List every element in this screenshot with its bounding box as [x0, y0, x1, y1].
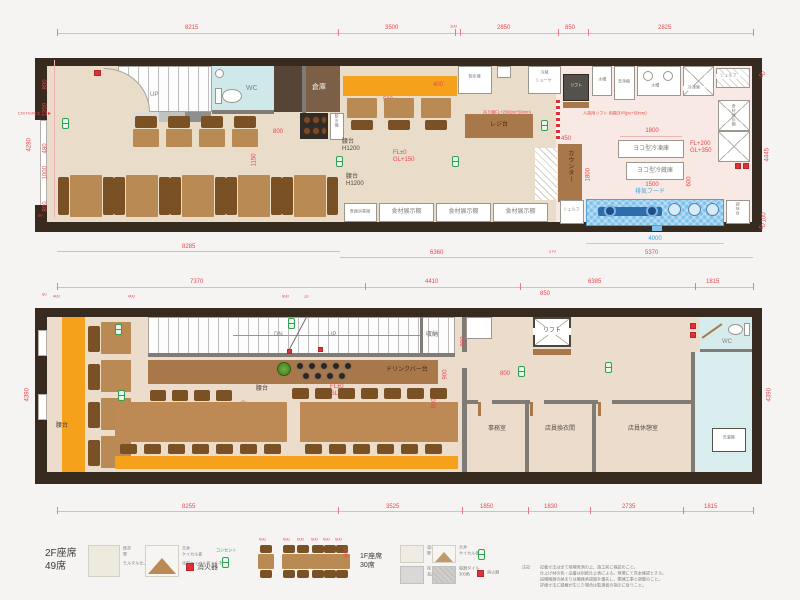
chair — [168, 444, 185, 454]
f1-food-shelf-label: 食材展示棚 — [379, 209, 434, 216]
table — [126, 175, 158, 217]
f1-wc-wall — [212, 110, 274, 114]
chair — [312, 570, 324, 578]
outlet-icon — [452, 156, 459, 167]
chair — [324, 545, 336, 553]
chair — [58, 177, 69, 215]
f1-wall-right — [752, 58, 762, 232]
burner — [668, 203, 681, 216]
chair — [170, 177, 181, 215]
f1-dim-850: 850 — [565, 25, 575, 32]
table — [70, 175, 102, 217]
pot — [308, 362, 316, 370]
f2-dim-1815: 1815 — [706, 279, 719, 286]
f1-dim-1800v: 1800 — [586, 155, 593, 181]
outlet-icon — [478, 549, 485, 560]
fire-extinguisher-icon — [287, 349, 292, 354]
f1-fl-plus: FL+200 — [690, 141, 711, 148]
legend-sw1-label2: 壁 — [123, 553, 127, 558]
bottle — [312, 116, 320, 124]
f1-toilet-tank — [215, 88, 222, 104]
f1-sink2 — [637, 66, 681, 96]
f2-partition — [467, 400, 478, 404]
dim-tick — [455, 29, 456, 36]
f2-dim-800b: 800 — [432, 382, 439, 408]
f1-freezer-label: 冷凍庫 — [683, 86, 705, 91]
dim-tick — [753, 29, 754, 36]
outlet-icon — [288, 318, 295, 329]
legend-swatch-wall — [88, 545, 120, 577]
f1-sink1-label: 水槽 — [594, 78, 610, 83]
floor-plan-sheet: 8215 3500 100 2850 850 2825 UP WC 倉庫 飲水機… — [0, 0, 800, 600]
f1-dim-1800h: 1800 — [632, 128, 672, 135]
f2-room-wall-v — [691, 352, 695, 472]
f1-dim-270: 270 — [549, 250, 556, 255]
f1-dim-400: 400 — [433, 82, 443, 89]
door-leaf — [478, 402, 481, 416]
f1-dim-1150: 1150 — [252, 140, 259, 166]
f2-partition — [612, 400, 693, 404]
f1-dim-4000: 4000 — [635, 236, 675, 243]
chair — [135, 116, 157, 128]
chair — [425, 120, 447, 130]
legend-r1c2-l1: 天井 — [459, 546, 467, 551]
f2-rest-label: 店員休憩室 — [598, 426, 688, 433]
table — [421, 98, 451, 118]
f2-bench — [62, 317, 85, 472]
f1-dim-800: 800 — [273, 129, 283, 136]
chair — [377, 444, 394, 454]
legend-sw2-label: 天井 — [182, 547, 190, 552]
chair — [361, 388, 378, 399]
f2-dim-6385: 6385 — [588, 279, 601, 286]
table — [182, 175, 214, 217]
chair — [264, 444, 281, 454]
pot — [338, 372, 346, 380]
outlet-icon — [541, 120, 548, 131]
f2-sdim-900: 900 — [282, 295, 289, 300]
f2-wall-bottom — [42, 472, 760, 484]
chair — [338, 388, 355, 399]
legend-2f-seats: 2F座席 — [45, 548, 77, 560]
f1-ldim-480: 480 — [43, 127, 50, 153]
f2-right-total: 4390 — [767, 375, 774, 401]
f1-dim-1500: 1500 — [632, 182, 672, 189]
f2-corridor-blue — [695, 352, 752, 472]
legend-fire2-label: 消火器 — [487, 571, 499, 576]
chair — [297, 545, 309, 553]
chair — [150, 390, 166, 401]
burner — [646, 205, 658, 217]
f2-divider-wall — [462, 368, 467, 472]
legend-notes-title: 注記 — [522, 566, 530, 571]
pot — [296, 362, 304, 370]
f1-dishwasher-label: 洗浄機 — [613, 80, 635, 85]
f1-dim-600: 600 — [687, 160, 694, 186]
legend-1f-seats-count: 30席 — [360, 562, 375, 570]
f1-freezer — [683, 66, 714, 96]
f2-drink-bar-label: ドリンクバー台 — [386, 367, 428, 374]
chair — [327, 177, 338, 215]
f2-dim-8255: 8255 — [182, 504, 195, 511]
f2-bottom-dim-line — [57, 511, 753, 512]
f1-koshidai-label: 腰台 — [342, 139, 354, 146]
chair — [172, 390, 188, 401]
f1-ldim-800b: 800 — [43, 185, 50, 211]
f2-closet-wall — [420, 317, 423, 354]
f1-sink2-label: 水槽 — [647, 84, 663, 89]
table — [384, 98, 414, 118]
outlet-icon — [222, 557, 229, 568]
chair — [215, 177, 226, 215]
f1-storage-label: 倉庫 — [312, 84, 326, 92]
f2-table-band — [115, 402, 287, 442]
outlet-icon — [518, 366, 525, 377]
legend-note-line: 仕上げ材の色・品番は別紙仕上表による。現場にて見本確認とする。 — [540, 572, 666, 577]
f1-dim-450: 450 — [561, 136, 571, 143]
legend-1f-seats: 1F座席 — [360, 553, 382, 561]
f1-ldim-50: 50 — [38, 214, 43, 219]
f2-closet — [466, 317, 492, 339]
f1-rdim-4445: 4445 — [765, 135, 772, 161]
dim-tick — [460, 29, 461, 36]
dim-tick — [462, 507, 463, 514]
f2-lift-sill — [533, 349, 571, 355]
f2-dim-2735: 2735 — [622, 504, 635, 511]
f1-left-dim-line — [54, 60, 55, 218]
legend-swatch-chevron — [435, 552, 453, 562]
chair — [292, 388, 309, 399]
f2-wall-right — [752, 308, 762, 484]
f2-top-dim-line — [57, 287, 753, 288]
dim-tick — [338, 507, 339, 514]
f2-left-total: 4390 — [25, 375, 32, 401]
f1-note-lift: 人荷用リフト 両開き戸(pic+50mm) — [583, 112, 647, 117]
legend-sw1-label: 既存 — [123, 547, 131, 552]
table — [258, 554, 274, 569]
f1-food-storage — [718, 131, 750, 162]
chair — [216, 390, 232, 401]
f1-water-server-label: 飲水機 — [333, 114, 338, 127]
f2-stair-wall — [148, 353, 455, 357]
burner — [604, 205, 616, 217]
chair — [88, 326, 100, 352]
table — [282, 554, 310, 569]
f1-food-shelf-label: 食材展示棚 — [493, 209, 548, 216]
pot — [302, 372, 310, 380]
f2-dim-3525: 3525 — [386, 504, 399, 511]
table — [101, 360, 131, 392]
f1-shelf-top-label: シェルフ — [716, 74, 740, 79]
legend-dim-600: 600 — [259, 538, 266, 543]
f2-sdim-400a: 400 — [53, 295, 60, 300]
fire-extinguisher-icon — [690, 323, 696, 329]
f1-gl150: GL+150 — [393, 157, 415, 164]
chair — [384, 388, 401, 399]
chair — [226, 177, 237, 215]
chair — [88, 440, 100, 466]
f1-dim-8285: 8285 — [182, 244, 195, 251]
fire-extinguisher-icon — [186, 563, 194, 571]
f1-fire-shutter — [556, 100, 560, 140]
chair — [234, 116, 256, 128]
f1-showcase-label1: 冷蔵 — [533, 71, 556, 76]
table — [166, 129, 192, 147]
chair — [353, 444, 370, 454]
f2-washer-label: 洗濯機 — [711, 436, 746, 441]
chair — [388, 120, 410, 130]
chair — [240, 444, 257, 454]
legend-outlet-label: コンセント — [216, 549, 236, 554]
dim-tick — [588, 29, 589, 36]
f2-bench-bottom — [115, 456, 458, 469]
outlet-icon — [62, 118, 69, 129]
f2-dn-label: DN — [274, 332, 283, 339]
f1-toilet-bowl — [222, 89, 242, 103]
f1-food-shelf-label: 食材展示棚 — [436, 209, 491, 216]
f1-dim-8215: 8215 — [185, 25, 198, 32]
f1-up-label: UP — [150, 92, 158, 99]
f2-dim-4410: 4410 — [425, 279, 438, 286]
f1-dim-3500: 3500 — [385, 25, 398, 32]
outlet-icon — [336, 156, 343, 167]
dim-tick — [365, 283, 366, 290]
legend-r1c2-l2: ケイカル板 — [459, 552, 479, 557]
f1-dim-6360: 6360 — [430, 250, 443, 257]
legend-swatch-chevron — [148, 558, 176, 574]
f1-ice-maker-label: 製氷機 — [461, 75, 488, 80]
chair — [88, 364, 100, 390]
legend-swatch — [400, 566, 424, 584]
f1-seasoning-label: 調味台 — [734, 202, 739, 215]
f1-shelf-bottom-label: シェルフ — [558, 208, 585, 213]
f1-bottom-dim-line — [57, 251, 340, 252]
f2-dim-800a: 800 — [461, 320, 468, 346]
chair — [271, 177, 282, 215]
f1-dim-5370: 5370 — [645, 250, 658, 257]
f1-dim-100: 100 — [450, 25, 457, 30]
dim-tick — [520, 283, 521, 290]
f1-wc-label: WC — [246, 85, 258, 93]
f2-partition — [544, 400, 598, 404]
f1-koshidai-h: H1200 — [342, 146, 360, 153]
chair — [260, 545, 272, 553]
legend-r2c1-l1: 床 — [427, 567, 431, 572]
chair — [283, 545, 295, 553]
dim-tick — [695, 283, 696, 290]
chair — [312, 545, 324, 553]
outlet-icon — [115, 324, 122, 335]
pot — [320, 362, 328, 370]
bottle — [321, 127, 327, 135]
f2-dim-1830: 1830 — [544, 504, 557, 511]
f1-hood-dim-line — [586, 243, 724, 244]
chair — [216, 444, 233, 454]
chair — [103, 177, 114, 215]
bottle — [312, 127, 320, 135]
chair — [159, 177, 170, 215]
chair — [194, 390, 210, 401]
f2-up-label: UP — [328, 332, 336, 339]
legend-dim-600: 600 — [311, 538, 318, 543]
f1-ldim-1000: 1000 — [43, 153, 50, 179]
chair — [407, 388, 424, 399]
f2-sdim-10: 10 — [304, 295, 309, 300]
chair — [329, 444, 346, 454]
fire-extinguisher-icon — [94, 70, 101, 76]
dim-tick — [590, 507, 591, 514]
outlet-icon — [605, 362, 612, 373]
f1-koshidai-h2: H1200 — [346, 181, 364, 188]
f1-wall-top — [42, 58, 760, 66]
legend-note-line: 設備機器の納まりは機器承認図を優先し、関連工事と調整のこと。 — [540, 578, 662, 583]
f2-partition-v — [525, 404, 529, 472]
f1-dim-2850: 2850 — [497, 25, 510, 32]
sink-bowl — [643, 71, 653, 81]
outlet-icon — [118, 390, 125, 401]
table — [133, 129, 159, 147]
f1-showcase-label2: ショーケ — [530, 79, 557, 84]
f2-dim-7370: 7370 — [190, 279, 203, 286]
dim-tick — [683, 507, 684, 514]
f1-dish-shelf-label: 食器消毒棚 — [345, 210, 375, 215]
legend-sw2-label2: ケイカル板 — [182, 553, 202, 558]
legend-dim-600: 600 — [323, 538, 330, 543]
fire-extinguisher-icon — [318, 347, 323, 352]
f2-window — [38, 330, 47, 356]
f2-partition-v — [592, 404, 596, 472]
table — [199, 129, 225, 147]
legend-dim-600: 600 — [335, 538, 342, 543]
bottle — [303, 116, 311, 124]
dim-tick — [338, 29, 339, 36]
plant-icon — [277, 362, 291, 376]
chair — [425, 444, 442, 454]
table — [238, 175, 270, 217]
f1-entrance-label: ENTRANCE — [18, 112, 40, 117]
f2-dim-900: 900 — [443, 353, 450, 379]
f1-top-dim-line — [57, 33, 753, 34]
chair — [324, 570, 336, 578]
f2-koshidai-mid: 腰台 — [256, 386, 268, 393]
f2-lift-label: リフト — [533, 328, 571, 335]
f1-hood-label: 排気フード — [620, 189, 680, 196]
pot — [344, 362, 352, 370]
f1-koshidai-label2: 腰台 — [346, 174, 358, 181]
f1-lift-sill — [563, 102, 589, 108]
chair — [120, 444, 137, 454]
f2-wc-label: WC — [722, 339, 732, 346]
fire-extinguisher-icon — [690, 332, 696, 338]
chair — [144, 444, 161, 454]
f1-register-label: レジ台 — [465, 122, 533, 129]
legend-2f-seats-count: 49席 — [45, 561, 66, 573]
door-leaf — [598, 402, 601, 416]
f1-rdim-100: 100 — [762, 196, 769, 222]
f1-vestibule — [274, 66, 302, 112]
legend-dim-600: 600 — [297, 538, 304, 543]
chair — [401, 444, 418, 454]
legend-note-line: 記載寸法は全て現場実測の上、施工前に確認のこと。 — [540, 566, 638, 571]
fire-extinguisher-icon — [735, 163, 741, 169]
chair — [315, 388, 332, 399]
f2-dim-1850: 1850 — [480, 504, 493, 511]
pot — [332, 362, 340, 370]
f1-gl-plus: GL+350 — [690, 148, 712, 155]
f1-ldim-800: 800 — [43, 63, 50, 89]
f2-sdim-50: 50 — [42, 293, 47, 298]
f1-yoko-fridge-label: ヨコ型冷蔵庫 — [626, 168, 684, 175]
chair — [260, 570, 272, 578]
chair — [297, 570, 309, 578]
legend-dim-600: 600 — [283, 538, 290, 543]
f2-wall-top — [42, 308, 760, 317]
chair — [351, 120, 373, 130]
f2-dim-1815b: 1815 — [704, 504, 717, 511]
hood-stub — [652, 226, 662, 231]
f2-sdim-850: 850 — [540, 291, 550, 298]
f2-dim-800h: 800 — [500, 371, 510, 378]
chair — [336, 570, 348, 578]
f1-service-hatch — [535, 148, 557, 200]
legend-r1c1-l2: 壁 — [427, 552, 431, 557]
bottle — [303, 127, 311, 135]
chair — [168, 116, 190, 128]
door-leaf — [530, 402, 533, 416]
dim-tick — [57, 507, 58, 514]
chair — [305, 444, 322, 454]
dim-tick — [57, 283, 58, 290]
entrance-arrow-icon: ▶ — [48, 112, 51, 117]
f2-window — [38, 394, 47, 420]
dim-tick — [753, 283, 754, 290]
burner — [706, 203, 719, 216]
f2-toilet-tank — [744, 323, 750, 336]
f1-fl0: FL±0 — [393, 150, 407, 157]
pot — [326, 372, 334, 380]
f2-koshidai-left: 腰台 — [56, 423, 68, 430]
dim-tick — [528, 507, 529, 514]
f1-counter-label: カウンター — [566, 150, 573, 183]
f1-bottom-dim-line2 — [340, 257, 753, 258]
chair — [282, 177, 293, 215]
f2-sdim-400b: 400 — [128, 295, 135, 300]
f1-note-shelf: 吊り棚FL+250(pic+50mm) — [483, 111, 531, 116]
legend-r2c2-l2: 300角 — [459, 573, 470, 578]
table — [294, 175, 326, 217]
legend-fire-label: 消火器 — [197, 564, 218, 572]
f1-dim-2825: 2825 — [658, 25, 671, 32]
legend-note-line: 詳細寸法に疑義が生じた場合は監理者の指示に従うこと。 — [540, 584, 646, 589]
f2-toilet-bowl — [728, 324, 743, 335]
f1-small-unit — [497, 66, 511, 78]
fire-extinguisher-icon — [743, 163, 749, 169]
f1-wc-sink — [215, 69, 224, 78]
chair — [114, 177, 125, 215]
chair — [283, 570, 295, 578]
legend-dim-600v: 600 — [344, 537, 351, 557]
f2-changing-label: 店員換衣間 — [529, 426, 591, 433]
f1-ice-maker — [458, 66, 492, 94]
f2-office-label: 事務室 — [470, 426, 524, 433]
chair — [88, 402, 100, 428]
f1-ldim-total: 4280 — [27, 125, 34, 151]
f1-yoko-freezer-label: ヨコ型冷凍庫 — [618, 146, 684, 153]
pot — [314, 372, 322, 380]
bottle — [321, 116, 327, 124]
burner — [688, 203, 701, 216]
fire-extinguisher-icon — [477, 570, 484, 577]
